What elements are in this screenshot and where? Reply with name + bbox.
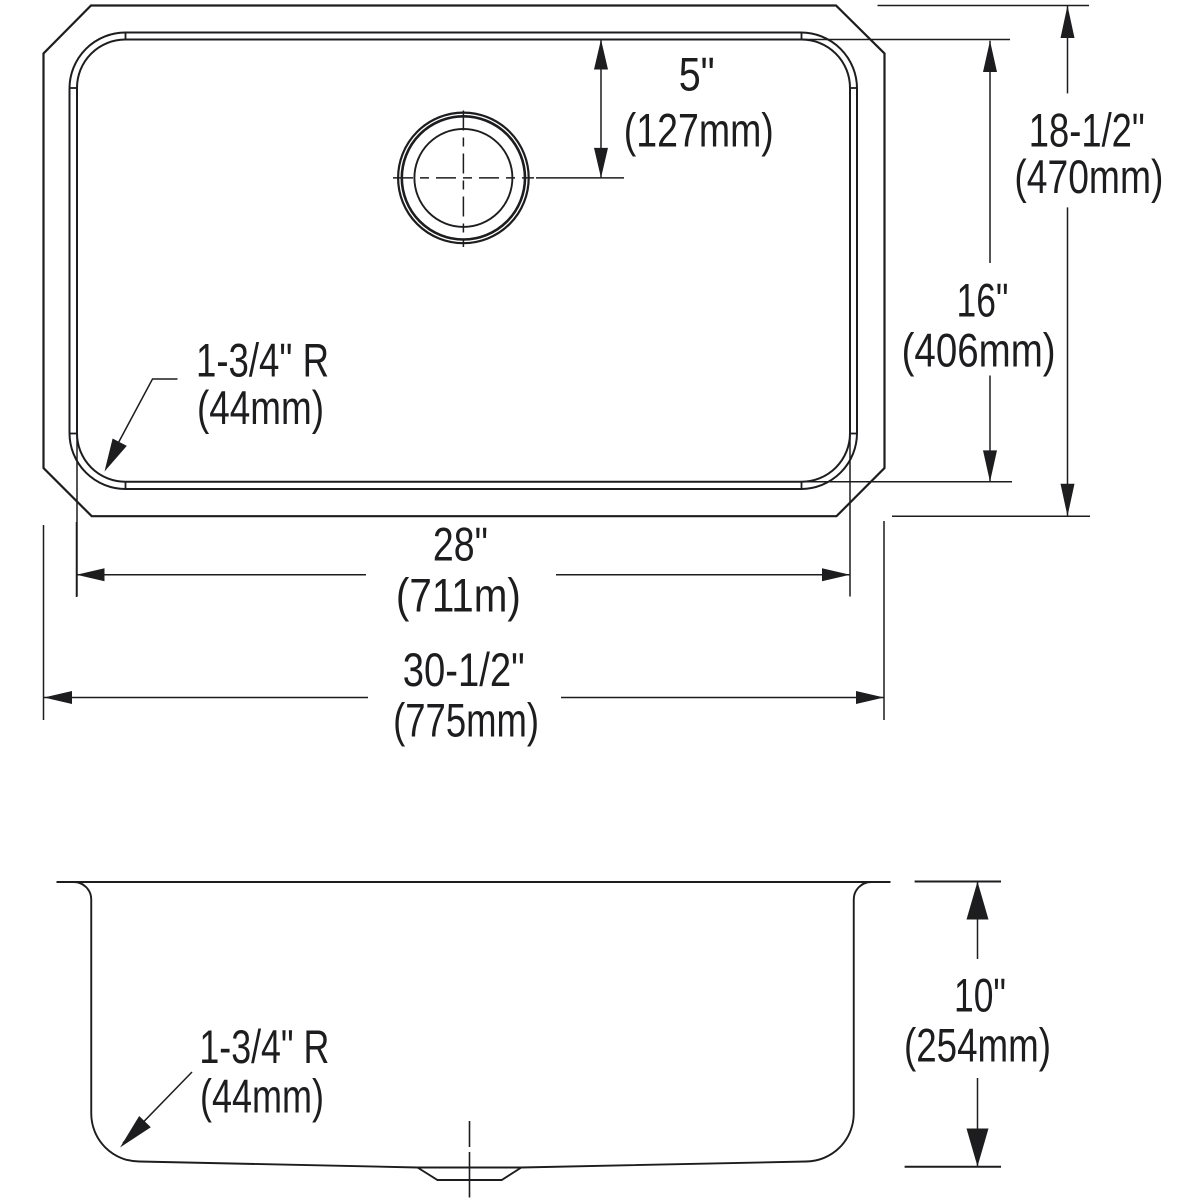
svg-text:(44mm): (44mm) <box>197 381 324 434</box>
svg-text:(775mm): (775mm) <box>393 693 539 746</box>
svg-text:30-1/2": 30-1/2" <box>403 643 525 696</box>
svg-text:1-3/4" R: 1-3/4" R <box>196 333 329 386</box>
svg-text:16": 16" <box>957 274 1009 327</box>
svg-text:(711m): (711m) <box>396 568 521 621</box>
svg-text:(406mm): (406mm) <box>902 324 1056 377</box>
svg-text:(127mm): (127mm) <box>624 104 774 157</box>
svg-text:1-3/4" R: 1-3/4" R <box>199 1020 329 1073</box>
svg-text:28": 28" <box>433 517 488 570</box>
svg-text:18-1/2": 18-1/2" <box>1029 104 1145 157</box>
svg-text:10": 10" <box>954 969 1006 1022</box>
svg-text:5": 5" <box>679 47 715 100</box>
svg-text:(44mm): (44mm) <box>200 1070 324 1123</box>
svg-text:(254mm): (254mm) <box>904 1018 1051 1071</box>
svg-text:(470mm): (470mm) <box>1014 150 1163 203</box>
